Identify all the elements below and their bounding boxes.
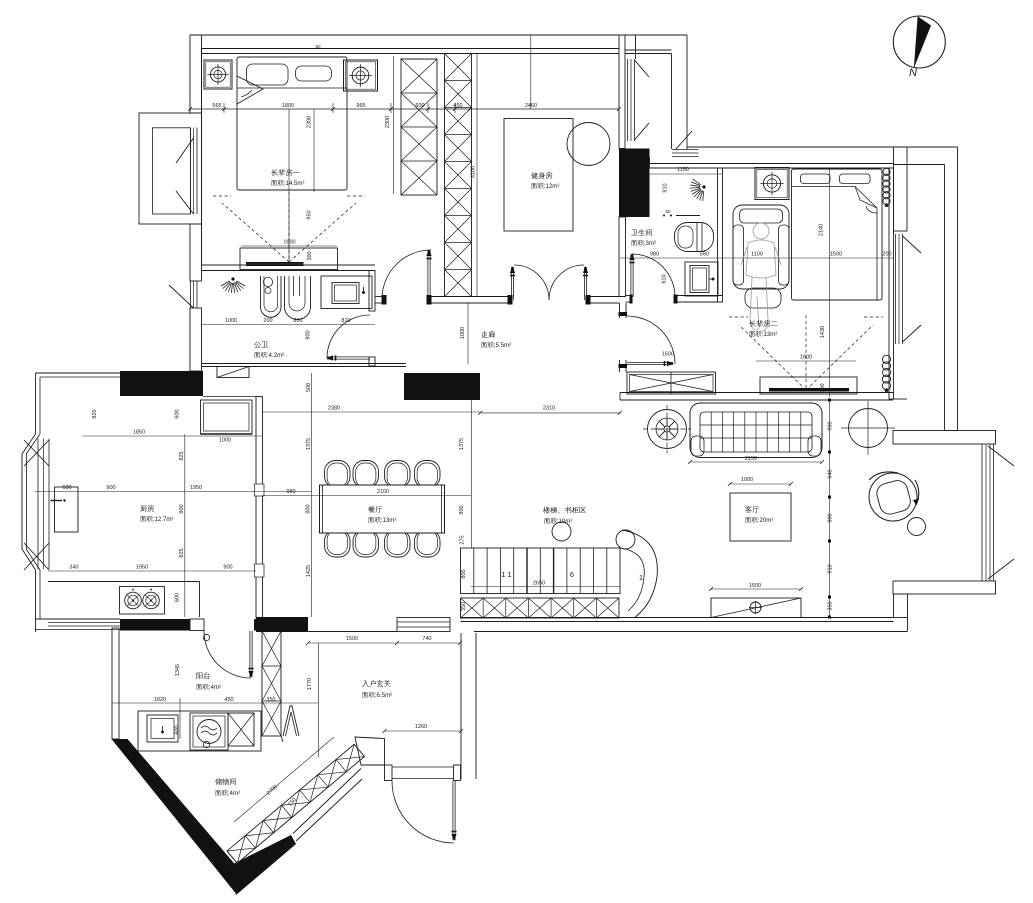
svg-text:980: 980 (286, 489, 295, 495)
svg-text:2650: 2650 (533, 581, 545, 587)
svg-text:1 1: 1 1 (501, 570, 511, 579)
svg-text:1430: 1430 (820, 326, 826, 338)
svg-text:980: 980 (650, 252, 659, 258)
svg-text:1260: 1260 (415, 724, 427, 730)
svg-text:740: 740 (422, 636, 431, 642)
svg-text:600: 600 (175, 409, 181, 418)
svg-text:900: 900 (223, 565, 232, 571)
svg-text:800: 800 (461, 569, 467, 578)
svg-text:1850: 1850 (133, 430, 145, 436)
svg-text:1770: 1770 (307, 678, 313, 690)
svg-text::10m²: :10m² (557, 518, 573, 525)
svg-text:810: 810 (341, 318, 350, 324)
svg-text:300: 300 (307, 251, 313, 260)
svg-text:1000: 1000 (225, 318, 237, 324)
svg-text:1820: 1820 (154, 697, 166, 703)
svg-text:2150: 2150 (745, 456, 757, 462)
svg-text:275: 275 (460, 535, 466, 544)
svg-text:640: 640 (828, 469, 834, 478)
svg-text:825: 825 (179, 548, 185, 557)
svg-text:1425: 1425 (306, 565, 312, 577)
svg-text:450: 450 (224, 697, 233, 703)
svg-text:1100: 1100 (751, 252, 763, 258)
svg-text:50: 50 (315, 44, 321, 49)
svg-text:1000: 1000 (460, 327, 466, 339)
svg-text:1150: 1150 (677, 167, 689, 173)
svg-text:565: 565 (212, 103, 221, 109)
svg-text:2460: 2460 (525, 103, 537, 109)
svg-text:810: 810 (663, 183, 669, 192)
svg-text::13m²: :13m² (381, 517, 397, 524)
svg-text::14.5m²: :14.5m² (284, 180, 305, 187)
svg-text:N: N (909, 67, 917, 79)
svg-text:900: 900 (306, 330, 312, 339)
svg-text:2300: 2300 (307, 116, 313, 128)
svg-text:350: 350 (461, 602, 467, 611)
svg-text:600: 600 (175, 725, 181, 734)
svg-text:2100: 2100 (377, 489, 389, 495)
svg-text:1950: 1950 (190, 485, 202, 491)
svg-text:2380: 2380 (328, 406, 340, 412)
svg-text:350: 350 (828, 601, 834, 610)
svg-text:800: 800 (459, 505, 465, 514)
svg-text::12.7m²: :12.7m² (153, 516, 174, 523)
svg-text:1375: 1375 (459, 438, 465, 450)
svg-text:910: 910 (828, 564, 834, 573)
svg-text:1: 1 (639, 573, 643, 582)
svg-text:1000: 1000 (219, 438, 231, 444)
svg-text:900: 900 (106, 485, 115, 491)
svg-text:600: 600 (415, 103, 424, 109)
svg-text:450: 450 (453, 103, 462, 109)
svg-text:1500: 1500 (830, 252, 842, 258)
svg-text:1500: 1500 (749, 583, 761, 589)
svg-text:1000: 1000 (741, 477, 753, 483)
svg-text::20m²: :20m² (758, 517, 774, 524)
svg-text:610: 610 (662, 274, 668, 283)
svg-text:300: 300 (820, 383, 826, 392)
svg-text:50: 50 (665, 209, 671, 214)
svg-text:965: 965 (356, 103, 365, 109)
svg-text::6.5m²: :6.5m² (375, 692, 392, 699)
svg-text:800: 800 (179, 504, 185, 513)
svg-text:800: 800 (828, 513, 834, 522)
svg-text:1600: 1600 (800, 355, 812, 361)
svg-text:1950: 1950 (136, 565, 148, 571)
svg-text:1600: 1600 (283, 240, 295, 246)
svg-text:6: 6 (570, 570, 574, 579)
svg-text:600: 600 (62, 485, 71, 491)
svg-text:600: 600 (175, 593, 181, 602)
svg-text:200: 200 (882, 252, 891, 258)
svg-text::3m²: :3m² (644, 240, 656, 247)
svg-text:350: 350 (266, 697, 275, 703)
svg-text::4m²: :4m² (228, 790, 240, 797)
svg-text:820: 820 (92, 409, 98, 418)
svg-text:800: 800 (306, 504, 312, 513)
svg-text::12m²: :12m² (544, 183, 560, 190)
svg-text:2140: 2140 (819, 224, 825, 236)
svg-text:825: 825 (179, 451, 185, 460)
svg-text:1375: 1375 (306, 438, 312, 450)
svg-text:1500: 1500 (662, 352, 674, 358)
svg-text::13m²: :13m² (762, 331, 778, 338)
svg-text::4.2m²: :4.2m² (267, 352, 284, 359)
svg-text:500: 500 (306, 383, 312, 392)
svg-text:1345: 1345 (175, 664, 181, 676)
svg-text::5.5m²: :5.5m² (494, 342, 511, 349)
svg-text:1800: 1800 (282, 103, 294, 109)
svg-text::4m²: :4m² (209, 684, 221, 691)
svg-text:200: 200 (263, 318, 272, 324)
svg-text:2310: 2310 (543, 406, 555, 412)
svg-text:4100: 4100 (471, 166, 477, 178)
svg-text:340: 340 (69, 565, 78, 571)
svg-text:550: 550 (700, 252, 709, 258)
svg-text:800: 800 (293, 318, 302, 324)
svg-text:950: 950 (307, 210, 313, 219)
svg-text:1500: 1500 (346, 636, 358, 642)
svg-text:2300: 2300 (385, 116, 391, 128)
svg-text:900: 900 (828, 421, 834, 430)
